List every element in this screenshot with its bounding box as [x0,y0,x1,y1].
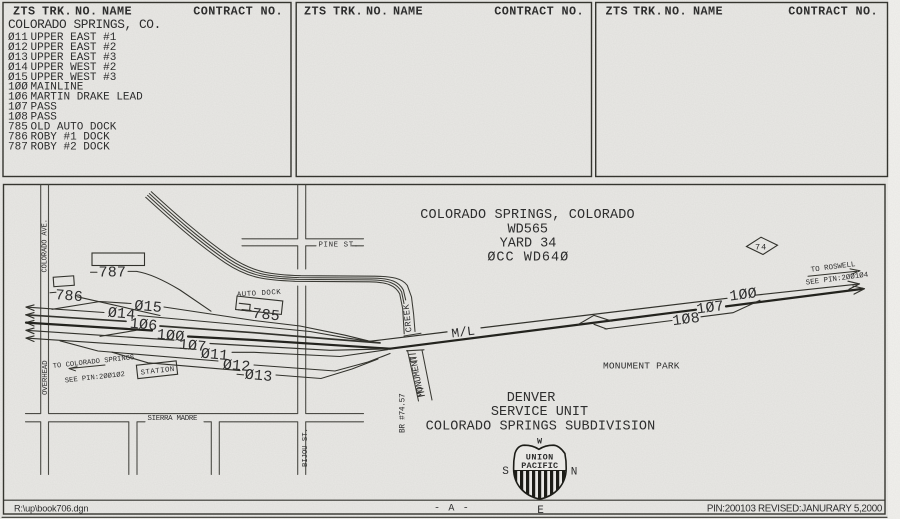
svg-text:ZTS: ZTS [304,5,326,19]
svg-text:SIERRA MADRE: SIERRA MADRE [148,415,198,423]
svg-text:1Ø8: 1Ø8 [671,310,701,330]
svg-text:N: N [571,466,578,478]
svg-text:TRK.: TRK. [333,5,363,19]
svg-text:YARD 34: YARD 34 [500,236,557,251]
svg-text:NO.: NO. [665,5,687,19]
svg-text:1Ø6: 1Ø6 [129,316,158,335]
svg-text:COLORADO SPRINGS, CO.: COLORADO SPRINGS, CO. [8,17,161,32]
svg-text:W: W [537,437,543,447]
svg-text:E: E [537,505,544,517]
svg-text:S: S [502,466,509,478]
svg-text:787ROBY #2 DOCK: 787ROBY #2 DOCK [8,141,110,153]
svg-text:Ø15: Ø15 [134,298,163,317]
svg-text:ØCC WD64Ø: ØCC WD64Ø [487,250,569,265]
svg-text:NO.: NO. [366,5,388,19]
svg-text:BR #74.57: BR #74.57 [400,393,408,433]
svg-text:COLORADO SPRINGS, COLORADO: COLORADO SPRINGS, COLORADO [420,208,635,223]
svg-text:Ø13: Ø13 [244,367,273,386]
svg-text:TRK.: TRK. [633,5,663,19]
svg-text:OVERHEAD: OVERHEAD [42,360,50,395]
svg-text:PIN:200103 REVISED:JANURARY 5,: PIN:200103 REVISED:JANURARY 5,2000 [707,503,883,514]
svg-text:SERVICE UNIT: SERVICE UNIT [491,405,588,420]
svg-text:786: 786 [55,287,84,306]
svg-text:787: 787 [99,264,127,281]
svg-text:CONTRACT NO.: CONTRACT NO. [788,5,878,19]
svg-text:- A -: - A - [434,504,470,515]
svg-text:74: 74 [755,243,767,253]
svg-text:NAME: NAME [393,5,423,19]
svg-text:COLORADO AVE.: COLORADO AVE. [42,219,50,272]
svg-text:COLORADO SPRINGS SUBDIVISION: COLORADO SPRINGS SUBDIVISION [426,419,656,434]
svg-text:CONTRACT NO.: CONTRACT NO. [193,5,283,19]
svg-text:NAME: NAME [693,5,723,19]
svg-text:PACIFIC: PACIFIC [521,461,558,471]
svg-text:ZTS: ZTS [606,5,628,19]
svg-text:WD565: WD565 [508,223,549,238]
svg-text:CONTRACT NO.: CONTRACT NO. [494,5,584,19]
svg-text:R:\up\book706.dgn: R:\up\book706.dgn [14,504,88,514]
svg-text:BIJOU ST.: BIJOU ST. [302,428,310,467]
svg-text:MONUMENT PARK: MONUMENT PARK [603,360,680,371]
svg-text:1ØØ: 1ØØ [728,285,758,305]
svg-text:DENVER: DENVER [507,391,556,406]
svg-text:785: 785 [251,306,280,326]
svg-text:PINE ST.: PINE ST. [319,242,359,250]
